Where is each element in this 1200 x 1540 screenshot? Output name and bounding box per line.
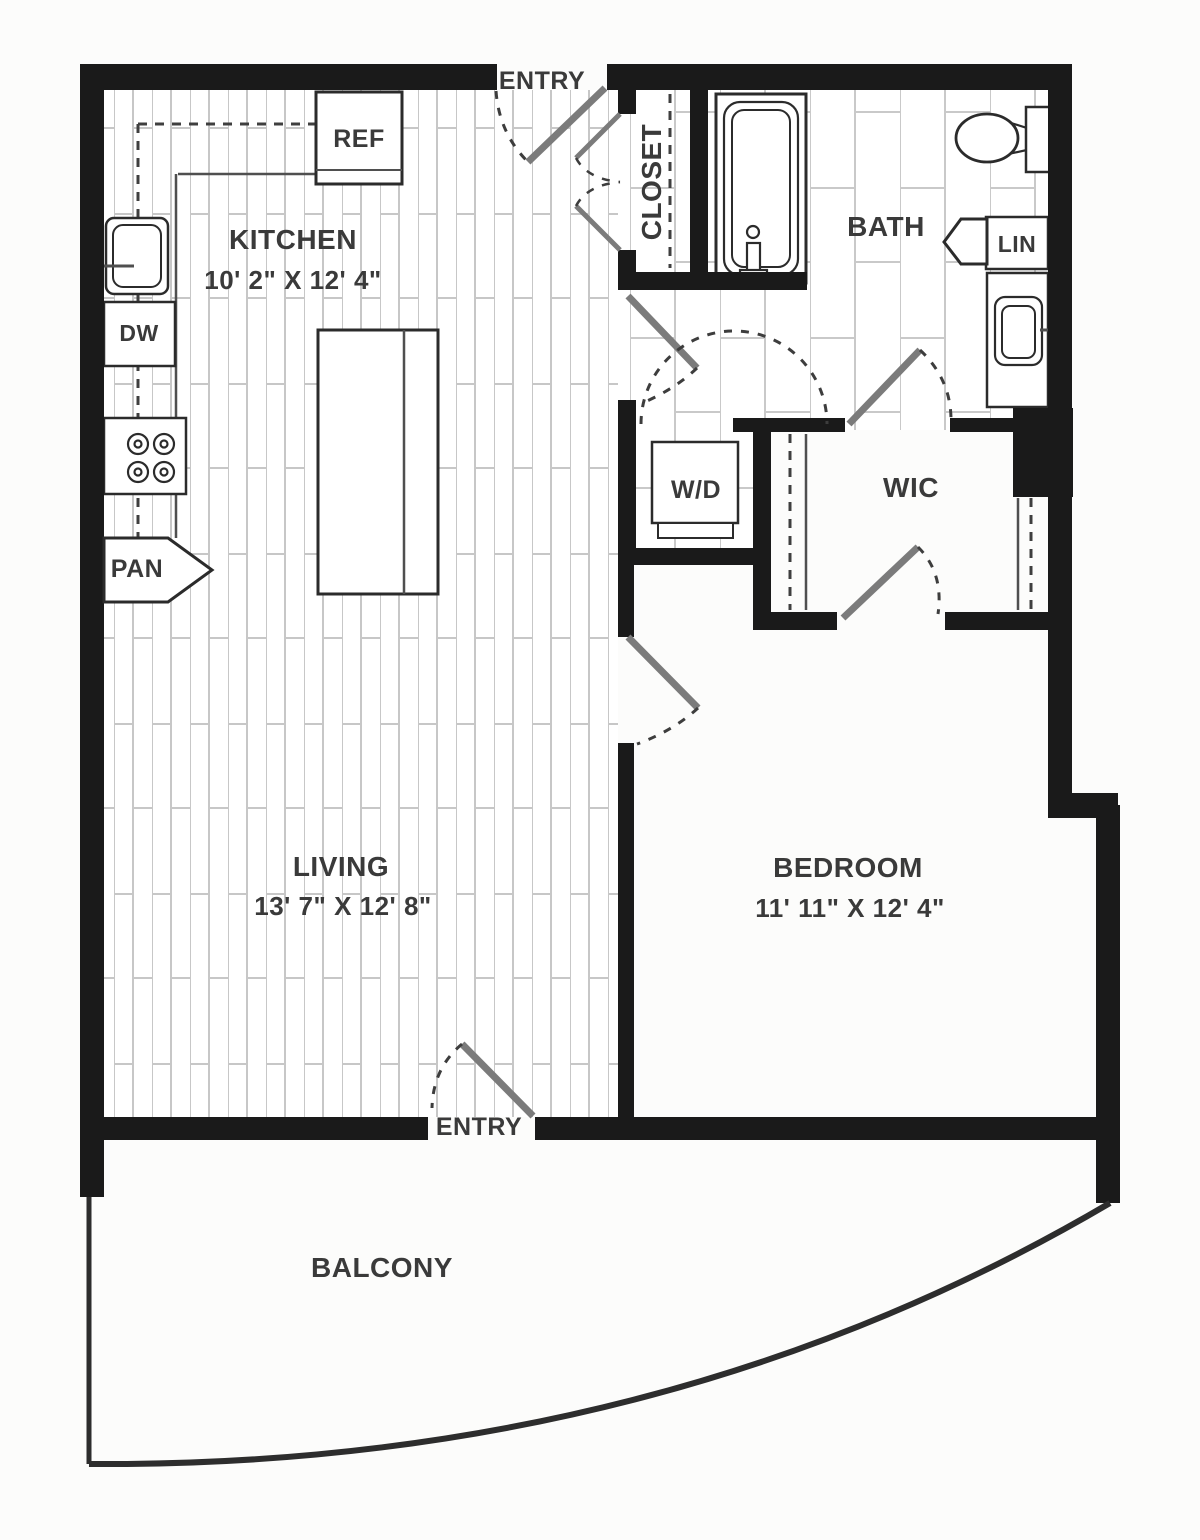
pantry-label: PAN	[111, 555, 163, 583]
closet-label: CLOSET	[636, 124, 667, 241]
wall-bedroom-lower	[618, 743, 634, 1117]
refrigerator-label: REF	[333, 125, 385, 153]
wall-closet-stub-top	[618, 90, 636, 114]
wall-bottom-right	[535, 1117, 1120, 1140]
wall-hall-bottom	[733, 418, 845, 432]
wall-bath-bottom	[618, 272, 807, 290]
wall-wic-top	[950, 418, 1018, 432]
kitchen-dimensions: 10' 2" X 12' 4"	[204, 265, 382, 295]
entry-top-label: ENTRY	[499, 67, 585, 95]
wall-right-lower	[1096, 805, 1120, 1203]
bedroom-label: BEDROOM	[773, 852, 923, 883]
wall-left	[80, 64, 104, 1140]
kitchen-label: KITCHEN	[229, 224, 357, 255]
wic-label: WIC	[883, 472, 939, 503]
floor-plan-drawing: ENTRY CLOSET BATH LIN REF KITCHEN 10' 2"…	[0, 0, 1200, 1540]
bath-label: BATH	[847, 211, 925, 242]
living-dimensions: 13' 7" X 12' 8"	[254, 891, 432, 921]
dishwasher-label: DW	[119, 320, 158, 346]
washer-dryer-label: W/D	[671, 476, 721, 504]
wall-wic-bottom-left	[753, 612, 837, 630]
wall-laundry-left	[618, 400, 636, 565]
vanity-sink-basin	[1002, 306, 1035, 358]
bedroom-dimensions: 11' 11" X 12' 4"	[755, 893, 945, 923]
stove	[104, 418, 186, 494]
kitchen-island	[318, 330, 438, 594]
bathtub-faucet-icon	[747, 243, 760, 271]
kitchen-sink-basin	[113, 225, 161, 287]
wall-closet-bath-divider	[690, 90, 708, 272]
wall-top-right	[607, 64, 1072, 90]
wall-top-left	[80, 64, 497, 90]
wall-bath-corner-block	[1013, 408, 1073, 497]
wood-floor-kitchen-living	[104, 90, 618, 1117]
wall-laundry-wic-divider	[753, 420, 771, 630]
wall-bedroom-upper	[618, 565, 634, 637]
living-label: LIVING	[293, 851, 389, 882]
entry-bottom-label: ENTRY	[436, 1113, 522, 1141]
wall-bottom-left	[80, 1117, 428, 1140]
wall-wic-bottom-right	[945, 612, 1048, 630]
wall-left-balcony-stub	[80, 1140, 104, 1197]
bathtub-drain-icon	[747, 226, 759, 238]
balcony-label: BALCONY	[311, 1252, 453, 1283]
linen-label: LIN	[998, 231, 1037, 257]
washer-dryer-tray	[658, 523, 733, 538]
toilet-bowl	[956, 114, 1018, 162]
wall-laundry-bottom	[618, 548, 753, 565]
floor-plan: ENTRY CLOSET BATH LIN REF KITCHEN 10' 2"…	[0, 0, 1200, 1540]
